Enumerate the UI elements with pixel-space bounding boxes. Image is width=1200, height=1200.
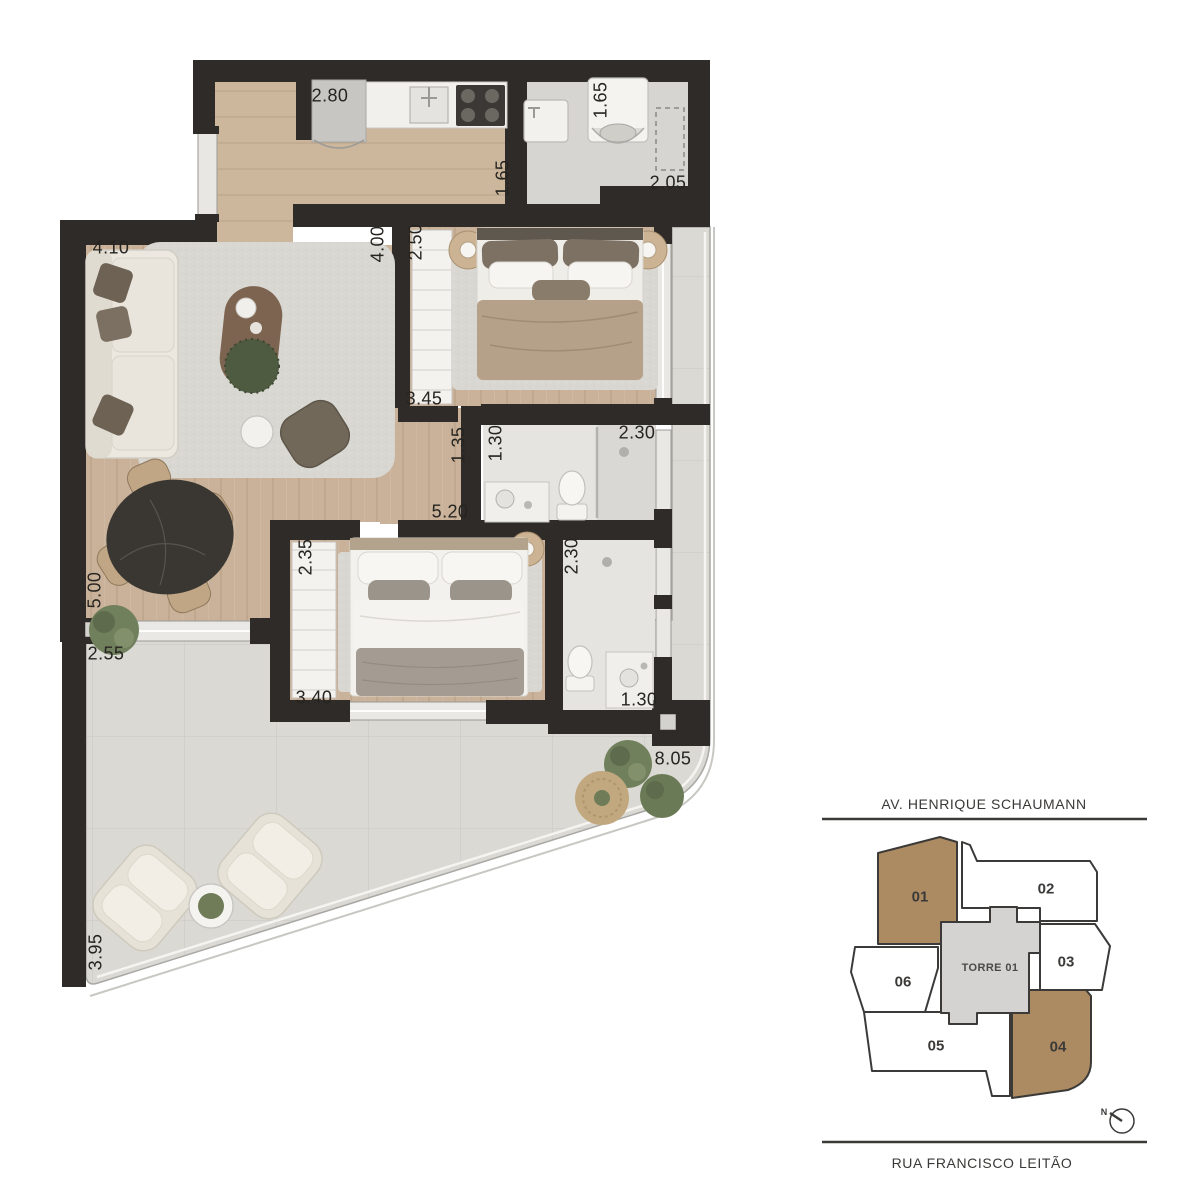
dimension-label: 3.40 <box>296 688 333 709</box>
unit-03-label: 03 <box>1058 954 1075 971</box>
unit-01-label: 01 <box>912 889 929 906</box>
dimension-label: 2.50 <box>406 224 427 261</box>
dimension-label: 2.05 <box>650 173 687 194</box>
key-plan <box>0 0 1200 1200</box>
street-name-bottom: RUA FRANCISCO LEITÃO <box>892 1155 1073 1171</box>
dimension-label: 1.65 <box>591 82 612 119</box>
dimension-label: 2.80 <box>312 86 349 107</box>
dimension-label: 4.10 <box>93 238 130 259</box>
street-name-top: AV. HENRIQUE SCHAUMANN <box>881 796 1086 812</box>
tower-label: TORRE 01 <box>962 962 1019 974</box>
dimension-label: 3.45 <box>406 389 443 410</box>
dimension-label: 5.20 <box>432 502 469 523</box>
floor-plan-page: 2.80 1.65 1.65 2.05 4.10 4.00 2.50 3.45 … <box>0 0 1200 1200</box>
dimension-label: 1.30 <box>621 690 658 711</box>
dimension-label: 2.35 <box>296 539 317 576</box>
unit-04-label: 04 <box>1050 1039 1067 1056</box>
dimension-label: 2.30 <box>619 423 656 444</box>
dimension-label: 4.00 <box>368 226 389 263</box>
dimension-label: 1.30 <box>486 425 507 462</box>
dimension-label: 1.65 <box>493 160 514 197</box>
dimension-label: 3.95 <box>86 934 107 971</box>
unit-06-label: 06 <box>895 974 912 991</box>
dimension-label: 2.55 <box>88 644 125 665</box>
unit-03-shape <box>1040 924 1110 990</box>
unit-02-label: 02 <box>1038 881 1055 898</box>
dimension-label: 8.05 <box>655 749 692 770</box>
dimension-label: 5.00 <box>85 572 106 609</box>
unit-05-label: 05 <box>928 1038 945 1055</box>
dimension-label: 2.30 <box>562 538 583 575</box>
unit-02-shape <box>962 842 1097 921</box>
dimension-label: 1.35 <box>449 427 470 464</box>
compass-north-label: N <box>1101 1107 1108 1117</box>
